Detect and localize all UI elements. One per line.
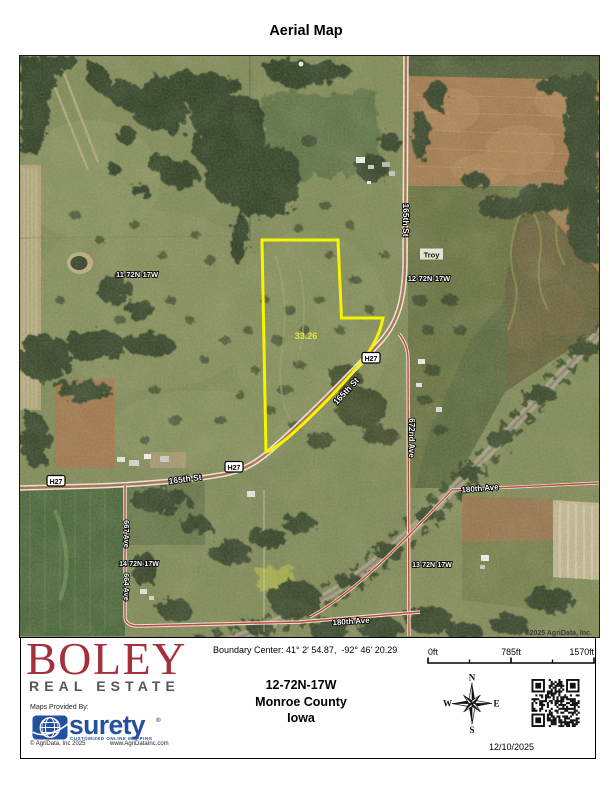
svg-text:0ft: 0ft <box>428 647 438 657</box>
svg-text:®: ® <box>156 716 161 724</box>
svg-text:W: W <box>443 699 452 709</box>
svg-text:S: S <box>469 725 474 734</box>
svg-text:785ft: 785ft <box>501 647 521 657</box>
svg-text:E: E <box>493 699 499 709</box>
svg-text:1570ft: 1570ft <box>570 647 595 657</box>
svg-text:N: N <box>469 673 476 683</box>
